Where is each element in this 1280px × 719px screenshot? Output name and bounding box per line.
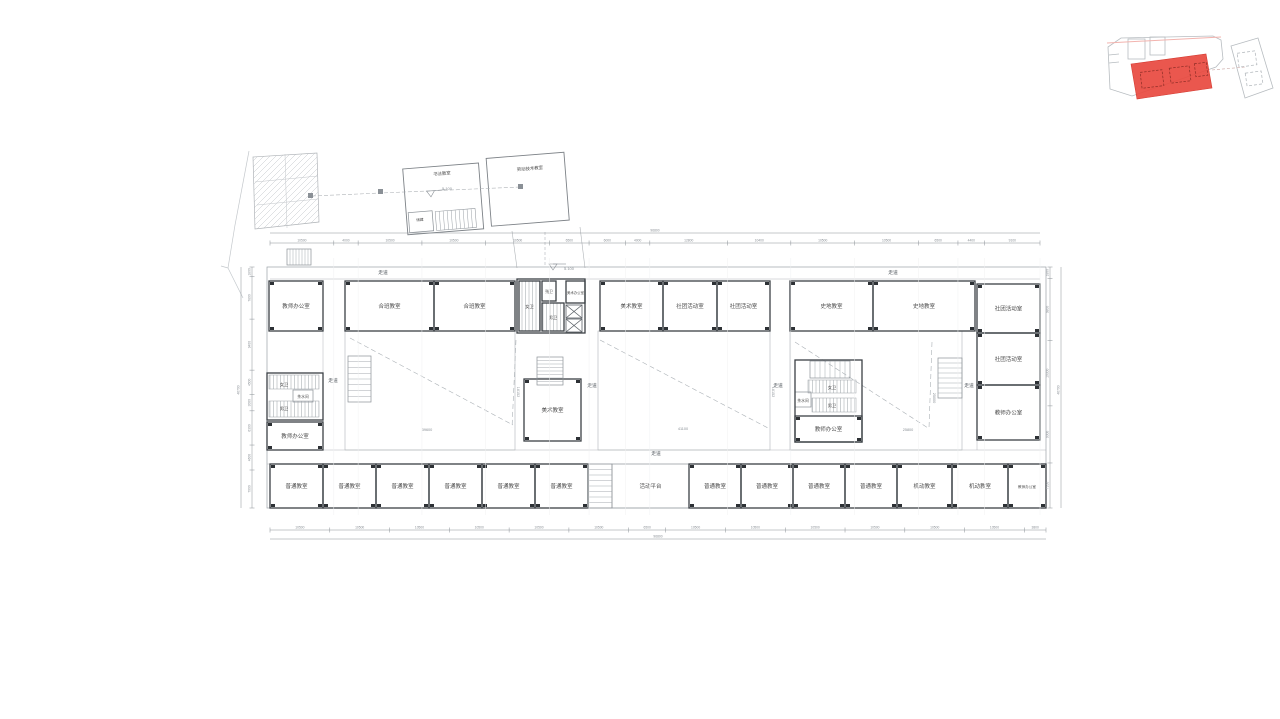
dim-label: 7100 <box>1046 482 1050 490</box>
room-label: 普通教室 <box>338 482 361 490</box>
wall-end <box>791 282 795 285</box>
wall-end <box>1003 504 1007 507</box>
dim-label: 10500 <box>691 526 700 530</box>
wall-end <box>765 327 769 330</box>
wall-end <box>583 465 587 468</box>
wall-end <box>1009 504 1013 507</box>
dim-label: 9100 <box>1009 239 1017 243</box>
wall-end <box>483 504 487 507</box>
annex-wing <box>402 152 569 234</box>
room-label: 教师办公室 <box>995 409 1023 417</box>
wall-end <box>658 327 662 330</box>
wall-end <box>978 381 982 384</box>
room-label: 普通教室 <box>391 482 414 490</box>
dim-label: 4600 <box>248 454 252 462</box>
room-label: 活动平台 <box>639 482 662 490</box>
room-label: 普通教室 <box>704 482 727 490</box>
keyplan-axis <box>1212 67 1245 70</box>
room-label: 普通教室 <box>285 482 308 490</box>
room-label: 普通教室 <box>444 482 467 490</box>
room-label: 社团活动室 <box>995 305 1023 313</box>
room-label: 普通教室 <box>550 482 573 490</box>
wall-end <box>377 465 381 468</box>
dim-label: 7000 <box>248 485 252 493</box>
room-label: 美术办公室 <box>567 290 585 295</box>
dim-label: 9800 <box>1046 306 1050 314</box>
wall-end <box>536 465 540 468</box>
wall-end <box>429 282 433 285</box>
wall-end <box>346 327 350 330</box>
wall-end <box>424 504 428 507</box>
wall-end <box>530 504 534 507</box>
axis-nodes <box>308 184 523 198</box>
dim-label: 1800 <box>1046 269 1050 277</box>
dim-label: 10500 <box>534 526 543 530</box>
wall-end <box>857 438 861 441</box>
wall-end <box>840 504 844 507</box>
room-label: 女卫 <box>828 384 836 391</box>
room-label: 储藏 <box>416 217 424 223</box>
dim-label: 4000 <box>342 239 350 243</box>
corridor-label: 走道 <box>888 269 898 276</box>
wall-end <box>268 423 272 426</box>
wall-end <box>712 327 716 330</box>
annex-stair-icon <box>435 208 476 230</box>
wall-end <box>718 282 722 285</box>
toilet-stalls <box>269 375 319 389</box>
wall-end <box>324 465 328 468</box>
wall-end <box>788 504 792 507</box>
wall-end <box>483 465 487 468</box>
wall-end <box>1035 329 1039 332</box>
wall-end <box>840 465 844 468</box>
dim-label: 6500 <box>935 239 943 243</box>
wall-end <box>874 282 878 285</box>
wall-end <box>435 327 439 330</box>
dim-label: 10500 <box>449 239 458 243</box>
existing-building <box>253 153 319 229</box>
corridor-label: 走道 <box>964 382 974 389</box>
wall-end <box>430 504 434 507</box>
wall-end <box>978 285 982 288</box>
wall-end <box>435 282 439 285</box>
wall-end <box>953 504 957 507</box>
wall-end <box>430 465 434 468</box>
wall-end <box>271 504 275 507</box>
wall-end <box>658 282 662 285</box>
corridor-label: 走道 <box>587 382 597 389</box>
elevator-icons <box>566 305 582 332</box>
room-label: 社团活动室 <box>730 302 758 310</box>
wall-end <box>794 504 798 507</box>
wall-end <box>525 437 529 440</box>
dim-total: 96800 <box>653 535 662 539</box>
wall-end <box>788 465 792 468</box>
wall-end <box>318 446 322 449</box>
wall-end <box>857 417 861 420</box>
drawing-canvas: { "drawing": { "type": "architectural-fl… <box>0 0 1280 719</box>
room-label: 社团活动室 <box>995 355 1023 363</box>
wall-end <box>664 327 668 330</box>
wall-end <box>712 282 716 285</box>
wall-end <box>953 465 957 468</box>
wall-end <box>583 504 587 507</box>
dim-label: 10500 <box>355 526 364 530</box>
dim-label: 10500 <box>513 239 522 243</box>
wall-end <box>371 465 375 468</box>
wall-end <box>742 504 746 507</box>
wall-end <box>978 386 982 389</box>
wall-end <box>1009 465 1013 468</box>
wall-end <box>1035 436 1039 439</box>
room-label: 教师办公室 <box>281 432 309 440</box>
wall-end <box>978 436 982 439</box>
wall-end <box>510 327 514 330</box>
wall-end <box>736 465 740 468</box>
wall-end <box>1041 465 1045 468</box>
wall-end <box>477 504 481 507</box>
wall-end <box>664 282 668 285</box>
room-label: 普通教室 <box>808 482 831 490</box>
dim-total: 96800 <box>650 229 659 233</box>
wall-end <box>601 282 605 285</box>
room-label: 普通教室 <box>497 482 520 490</box>
floor-plan-drawing: 教师办公室合班教室合班教室美术教室社团活动室社团活动室史地教室史地教室社团活动室… <box>0 0 1280 719</box>
dim-label: 10500 <box>882 239 891 243</box>
wall-end <box>268 446 272 449</box>
dim-label: 9000 <box>1046 431 1050 439</box>
dim-label: 25800 <box>903 428 914 432</box>
dim-label: 25000 <box>932 393 936 404</box>
wall-end <box>690 504 694 507</box>
wall-end <box>525 380 529 383</box>
dim-total: 46700 <box>237 385 241 394</box>
dim-label: 9400 <box>248 341 252 349</box>
dim-label: 39600 <box>422 428 433 432</box>
wall-end <box>892 504 896 507</box>
elevation-label: 5.100 <box>442 186 453 191</box>
corridor-label: 走道 <box>328 377 338 384</box>
wall-end <box>978 334 982 337</box>
wall-end <box>1041 504 1045 507</box>
wall-end <box>324 504 328 507</box>
wall-end <box>270 327 274 330</box>
dim-label: 6000 <box>604 239 612 243</box>
wall-end <box>1035 285 1039 288</box>
wall-end <box>978 329 982 332</box>
dim-label: 10500 <box>930 526 939 530</box>
elevation-label: 5.100 <box>564 266 575 271</box>
wall-end <box>796 417 800 420</box>
wall-end <box>846 465 850 468</box>
room-label: 普通教室 <box>860 482 883 490</box>
wall-end <box>1035 381 1039 384</box>
room-label: 机动教室 <box>913 482 936 490</box>
dim-label: 4000 <box>634 239 642 243</box>
dim-label: 3000 <box>248 399 252 407</box>
dim-label: 10500 <box>385 239 394 243</box>
wall-end <box>318 327 322 330</box>
wall-end <box>530 465 534 468</box>
dim-label: 10500 <box>475 526 484 530</box>
wall-end <box>601 327 605 330</box>
wall-end <box>424 465 428 468</box>
room-label: 劳动技术教室 <box>516 164 543 173</box>
room-label: 教师办公室 <box>815 425 843 433</box>
dim-label: 10400 <box>755 239 764 243</box>
wall-end <box>371 504 375 507</box>
wall-end <box>796 438 800 441</box>
dim-label: 12800 <box>684 239 693 243</box>
wall-end <box>874 327 878 330</box>
wall-end <box>846 504 850 507</box>
wall-end <box>947 504 951 507</box>
wall-end <box>718 327 722 330</box>
wall-end <box>377 504 381 507</box>
wall-end <box>271 465 275 468</box>
wall-end <box>318 282 322 285</box>
wall-end <box>970 327 974 330</box>
wall-end <box>576 380 580 383</box>
room-label: 茶水间 <box>297 394 309 399</box>
dim-label: 10500 <box>818 239 827 243</box>
dim-label: 7800 <box>248 294 252 302</box>
dim-label: 10500 <box>811 526 820 530</box>
dim-label: 6300 <box>248 424 252 432</box>
dim-label: 16152 <box>516 387 520 398</box>
wall-end <box>536 504 540 507</box>
key-plan <box>1095 25 1280 115</box>
room-label: 残卫 <box>545 289 553 294</box>
room-label: 女卫 <box>280 381 288 388</box>
room-label: 教师办公室 <box>1018 484 1036 489</box>
corridor-label: 走道 <box>378 269 388 276</box>
wall-end <box>868 327 872 330</box>
dim-label: 10300 <box>1046 368 1050 377</box>
toilet-stalls <box>269 401 319 417</box>
wall-end <box>791 327 795 330</box>
wall-end <box>690 465 694 468</box>
wall-end <box>794 465 798 468</box>
wall-end <box>1003 465 1007 468</box>
dim-total: 46700 <box>1057 385 1061 394</box>
room-label: 女卫 <box>525 303 533 310</box>
wall-end <box>429 327 433 330</box>
dim-label: 4500 <box>248 379 252 387</box>
dim-label: 41100 <box>678 427 688 431</box>
wall-end <box>1035 386 1039 389</box>
wall-end <box>970 282 974 285</box>
dim-label: 10500 <box>870 526 879 530</box>
wall-end <box>898 504 902 507</box>
room-label: 茶水间 <box>797 398 809 403</box>
wall-end <box>736 504 740 507</box>
dim-label: 10500 <box>751 526 760 530</box>
wall-end <box>765 282 769 285</box>
room-label: 美术教室 <box>620 302 643 310</box>
dim-label: 10500 <box>594 526 603 530</box>
wall-end <box>477 465 481 468</box>
room-label: 教师办公室 <box>282 302 310 310</box>
room-label: 社团活动室 <box>676 302 704 310</box>
room-label: 机动教室 <box>969 482 992 490</box>
dim-label: 6500 <box>644 526 652 530</box>
wall-end <box>947 465 951 468</box>
wall-end <box>346 282 350 285</box>
room-label: 书法教室 <box>433 169 452 177</box>
wall-end <box>1035 334 1039 337</box>
dim-label: 10500 <box>415 526 424 530</box>
dim-label: 6500 <box>566 239 574 243</box>
room-label: 合班教室 <box>378 302 401 310</box>
dim-label: 3800 <box>1032 526 1040 530</box>
wall-end <box>742 465 746 468</box>
dim-label: 10500 <box>295 526 304 530</box>
wall-end <box>318 465 322 468</box>
dim-label: 10500 <box>297 239 306 243</box>
wall-end <box>270 282 274 285</box>
wall-end <box>868 282 872 285</box>
wall-end <box>510 282 514 285</box>
dim-label: 1800 <box>248 268 252 276</box>
wall-end <box>318 423 322 426</box>
room-label: 合班教室 <box>463 302 486 310</box>
dim-label: 16152 <box>771 387 775 398</box>
dim-label: 4400 <box>968 239 976 243</box>
wall-end <box>318 504 322 507</box>
corridor-label: 走道 <box>651 450 661 457</box>
room-label: 美术教室 <box>541 406 564 414</box>
dim-label: 10500 <box>990 526 999 530</box>
room-label: 史地教室 <box>820 302 843 310</box>
room-label: 普通教室 <box>756 482 779 490</box>
room-label: 史地教室 <box>913 302 936 310</box>
wall-end <box>898 465 902 468</box>
wall-end <box>892 465 896 468</box>
site-boundary <box>221 151 249 298</box>
wall-end <box>576 437 580 440</box>
